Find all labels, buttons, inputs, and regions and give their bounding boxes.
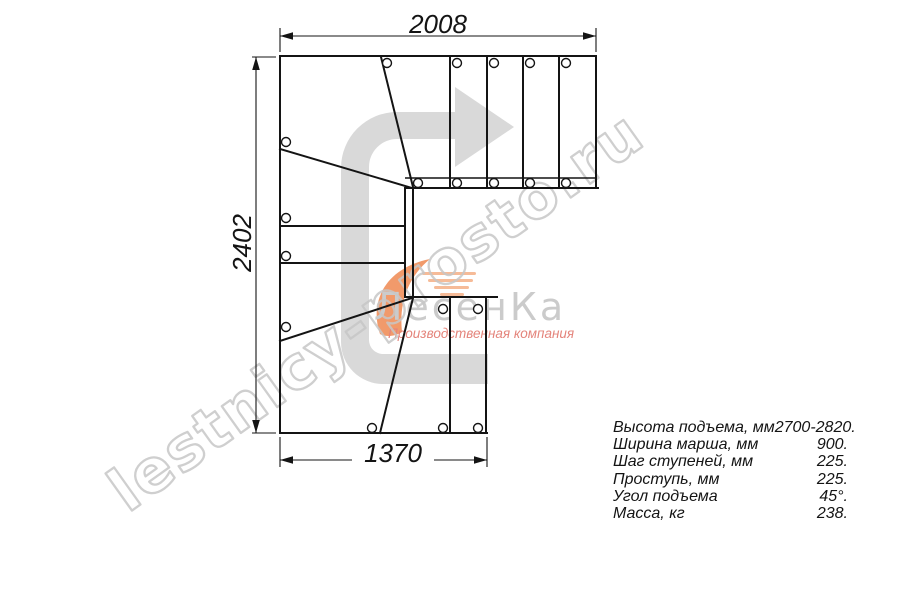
dim-bottom-label: 1370 xyxy=(364,438,422,468)
screw-hole xyxy=(282,323,291,332)
dim-arrow-icon xyxy=(280,32,293,40)
spec-row: Шаг ступеней, мм 225. xyxy=(613,453,848,470)
spec-value: 225. xyxy=(817,471,848,488)
screw-hole xyxy=(474,424,483,433)
spec-label: Ширина марша, мм xyxy=(613,436,758,453)
screw-hole xyxy=(562,59,571,68)
spec-row: Масса, кг 238. xyxy=(613,505,848,522)
spec-value: 225. xyxy=(817,453,848,470)
dim-left-label: 2402 xyxy=(227,214,257,273)
dimension-bottom: 1370 xyxy=(280,437,487,468)
spec-row: Угол подъема 45°. xyxy=(613,488,848,505)
spec-label: Шаг ступеней, мм xyxy=(613,453,753,470)
screw-hole xyxy=(439,424,448,433)
spec-value: 900. xyxy=(817,436,848,453)
dim-arrow-icon xyxy=(583,32,596,40)
spec-value: 2700-2820. xyxy=(775,419,856,436)
screw-hole xyxy=(282,138,291,147)
screw-hole xyxy=(368,424,377,433)
screw-hole xyxy=(562,179,571,188)
screw-hole xyxy=(453,59,462,68)
screw-hole xyxy=(383,59,392,68)
spec-row: Ширина марша, мм 900. xyxy=(613,436,848,453)
spec-label: Угол подъема xyxy=(613,488,718,505)
spec-label: Масса, кг xyxy=(613,505,685,522)
dimension-top: 2008 xyxy=(280,9,596,52)
spec-value: 238. xyxy=(817,505,848,522)
screw-hole xyxy=(526,179,535,188)
screw-hole xyxy=(414,179,423,188)
spec-row: Проступь, мм 225. xyxy=(613,471,848,488)
screw-hole xyxy=(474,305,483,314)
logo-subtitle: Производственная компания xyxy=(388,326,574,341)
spec-label: Проступь, мм xyxy=(613,471,719,488)
screw-hole xyxy=(453,179,462,188)
dim-top-label: 2008 xyxy=(408,9,467,39)
spec-table: Высота подъема, мм 2700-2820. Ширина мар… xyxy=(613,419,848,522)
screw-hole xyxy=(526,59,535,68)
spec-value: 45°. xyxy=(819,488,848,505)
spec-label: Высота подъема, мм xyxy=(613,419,775,436)
screw-hole xyxy=(439,305,448,314)
dim-arrow-icon xyxy=(280,456,293,464)
screw-hole xyxy=(282,252,291,261)
dim-arrow-icon xyxy=(252,57,260,70)
screw-hole xyxy=(490,179,499,188)
screw-hole xyxy=(282,214,291,223)
screw-hole xyxy=(490,59,499,68)
dim-arrow-icon xyxy=(474,456,487,464)
spec-row: Высота подъема, мм 2700-2820. xyxy=(613,419,848,436)
